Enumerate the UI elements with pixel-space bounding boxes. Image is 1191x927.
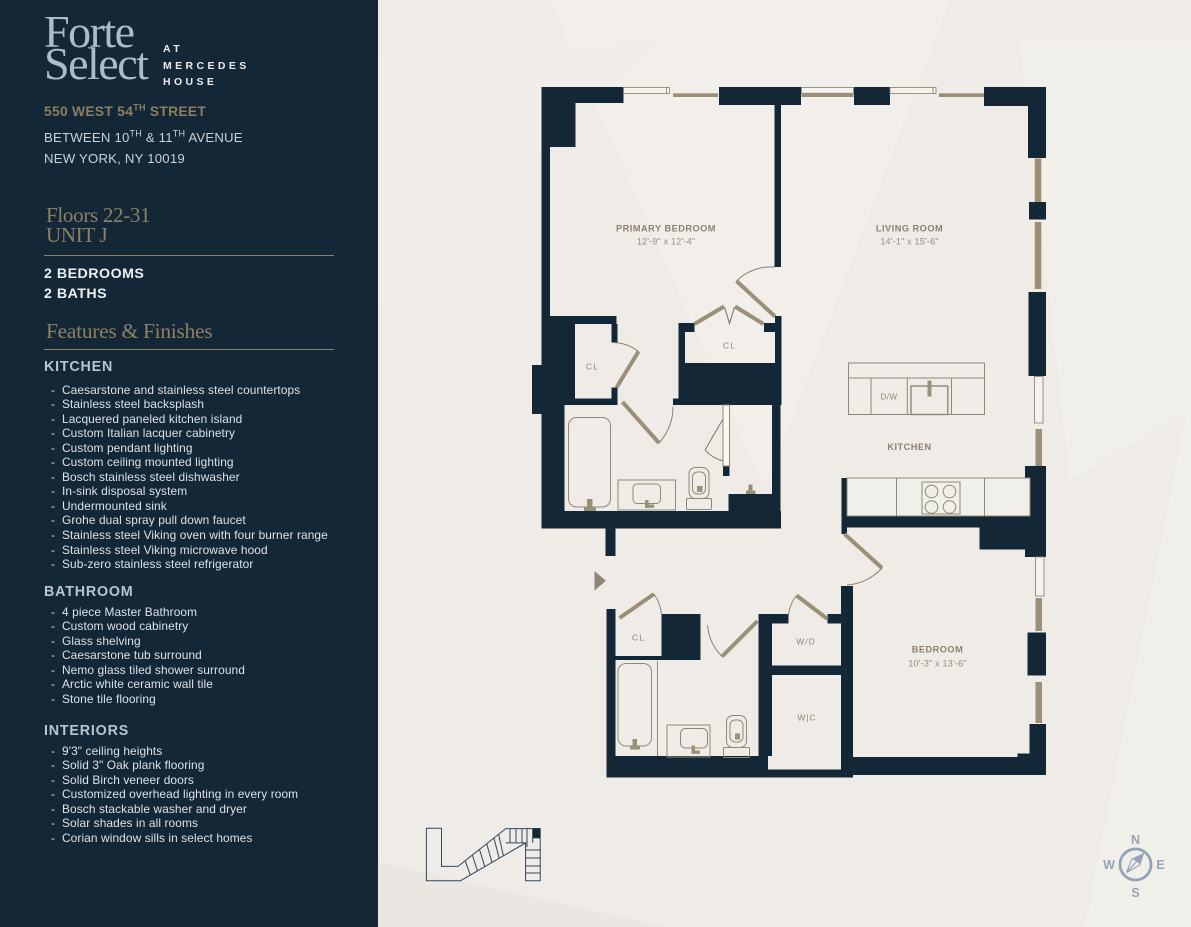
svg-text:CL: CL <box>632 633 645 643</box>
svg-text:KITCHEN: KITCHEN <box>887 442 931 452</box>
svg-text:CL: CL <box>723 341 736 351</box>
svg-text:E: E <box>1156 858 1164 872</box>
svg-text:S: S <box>1131 886 1139 900</box>
svg-text:W/D: W/D <box>796 637 816 647</box>
svg-text:PRIMARY BEDROOM: PRIMARY BEDROOM <box>616 224 716 234</box>
svg-text:W: W <box>1103 858 1115 872</box>
svg-text:LIVING ROOM: LIVING ROOM <box>876 224 943 234</box>
svg-text:N: N <box>1131 833 1140 847</box>
svg-text:BEDROOM: BEDROOM <box>912 645 963 655</box>
svg-text:10'-3" x 13'-6": 10'-3" x 13'-6" <box>908 659 966 669</box>
svg-text:W|C: W|C <box>797 713 816 723</box>
svg-text:D/W: D/W <box>880 393 897 402</box>
svg-text:CL: CL <box>586 362 599 372</box>
svg-text:12'-9" x 12'-4": 12'-9" x 12'-4" <box>637 237 695 247</box>
svg-text:14'-1" x 15'-6": 14'-1" x 15'-6" <box>880 237 938 247</box>
